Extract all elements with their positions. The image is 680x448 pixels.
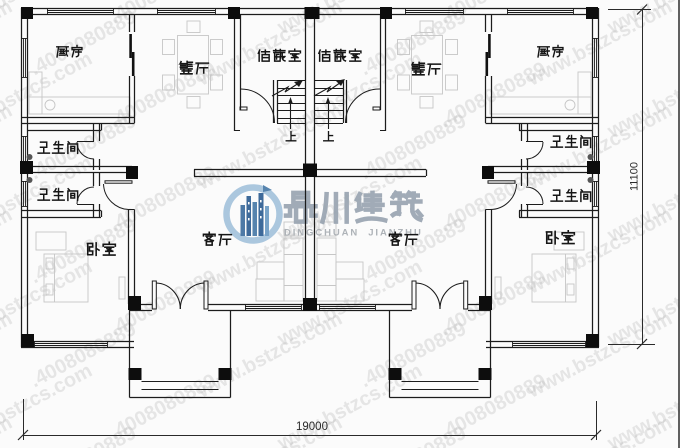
svg-text:19000: 19000 (296, 421, 328, 433)
svg-text:11100: 11100 (629, 162, 641, 191)
svg-text:DINGCHUAN JIANZHU: DINGCHUAN JIANZHU (284, 228, 423, 239)
